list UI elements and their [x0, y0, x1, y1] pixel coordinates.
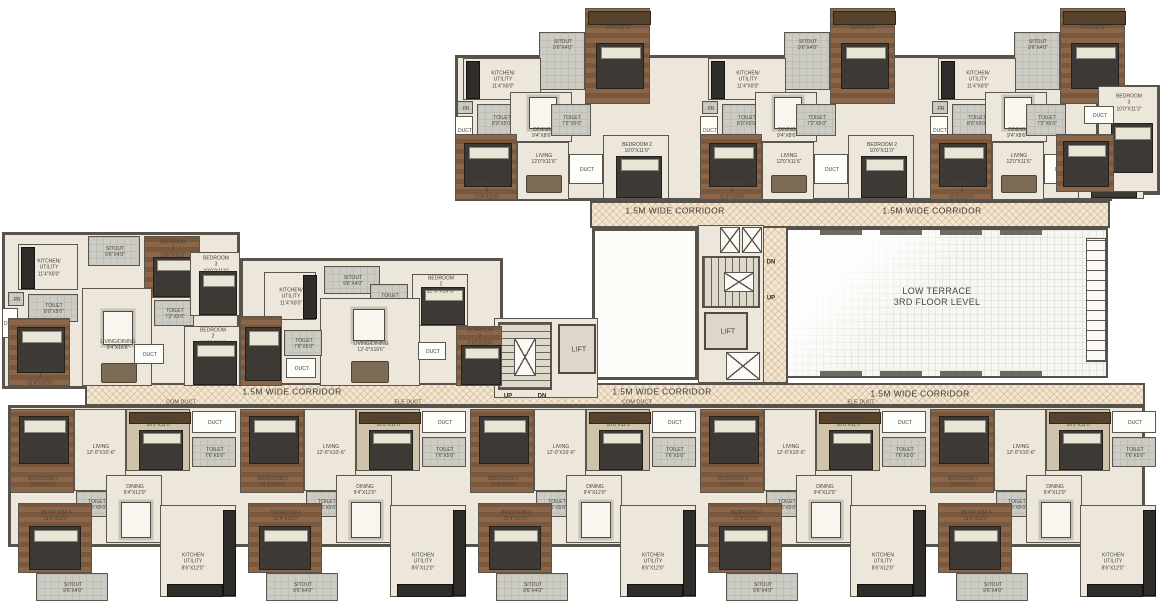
- lift-label: LIFT: [572, 347, 586, 356]
- room-label: LIVING 12'-0"X10'-6": [777, 444, 806, 457]
- room-label: BEDROOM 2 7'10"X10'6": [467, 328, 493, 347]
- bed: [464, 143, 512, 187]
- room-label: LIVING 12'-0"X10'-6": [1007, 444, 1036, 457]
- room-toilet: TOILET 7'6"X5'0": [1112, 437, 1156, 467]
- bed: [369, 430, 413, 470]
- room-bedroom-4: BEDROOM 4 11'4"X12'0": [708, 503, 782, 573]
- room-dining: DINING 9'4"X12'0": [1026, 475, 1082, 543]
- room-label: LIVING 12'0"X11'6": [1006, 153, 1031, 166]
- room-label: BEDROOM 2 11'3"X10'0": [28, 476, 58, 489]
- terrace-edge-mark: [940, 371, 982, 376]
- room-toilet: TOILET 7'6"X5'0": [192, 437, 236, 467]
- room-label: BEDROOM 3 10'0"X11'3": [1115, 94, 1143, 113]
- room-duct: DUCT: [422, 411, 466, 433]
- room-label: KITCHEN UTILITY 8'6"X12'0": [412, 553, 435, 572]
- room-bedroom-3: BEDROOM 3 10'0"X11'3": [585, 8, 650, 104]
- room-room: [1056, 134, 1114, 192]
- room-pr: PR: [702, 101, 718, 114]
- pillow: [846, 47, 887, 60]
- room-label: DUCT: [208, 420, 222, 426]
- room-label: SITOUT 9'6"X4'0": [293, 582, 313, 595]
- room-kitchen-utility: KITCHEN UTILITY 8'6"X12'0": [850, 505, 926, 597]
- pillow: [944, 147, 985, 159]
- room-label: BEDROOM 2 11'3"X10'0": [948, 476, 978, 489]
- bed: [1059, 430, 1103, 470]
- room-kitchen-utility: KITCHEN UTILITY 8'6"X12'0": [620, 505, 696, 597]
- duct-shaft: [726, 352, 760, 380]
- room-label: LIVING 12'0"X11'6": [531, 153, 556, 166]
- duct-shaft: [720, 227, 740, 253]
- room-label: DINING 9'4"X12'0": [814, 484, 837, 497]
- room-label: DUCT: [426, 349, 440, 355]
- bed: [616, 156, 662, 198]
- bed: [461, 345, 501, 385]
- bed: [719, 526, 771, 570]
- corridor: [762, 226, 788, 384]
- room-duct: DUCT: [1084, 106, 1114, 124]
- room-bedroom-2: BEDROOM 2 10'0"X11'0": [184, 326, 240, 386]
- sofa: [526, 175, 562, 193]
- room-living: LIVING 12'0"X11'6": [992, 142, 1044, 200]
- room-label: KITCHEN UTILITY 8'6"X12'0": [182, 553, 205, 572]
- room-label: DUCT: [825, 167, 839, 173]
- terrace-edge-mark: [820, 371, 862, 376]
- pillow: [714, 420, 756, 433]
- room-label: TOILET 7'6"X5'0": [895, 447, 915, 460]
- room-duct: DUCT: [286, 358, 316, 378]
- bed: [199, 271, 237, 315]
- pillow: [34, 530, 78, 542]
- room-label: SITOUT 9'6"X4'0": [753, 582, 773, 595]
- kitchen-counter: [167, 584, 223, 597]
- pillow: [714, 147, 755, 159]
- room-bedroom-4: BEDROOM 4 11'4"X12'0": [18, 503, 92, 573]
- room-label: KITCHEN/ UTILITY 11'4"X8'0": [491, 71, 514, 90]
- kitchen-counter: [683, 510, 696, 596]
- pillow: [249, 331, 280, 345]
- kitchen-counter: [21, 247, 35, 289]
- room-label: LIVING 12'0"X11'6": [776, 153, 801, 166]
- room-kitchen-utility: KITCHEN UTILITY 8'6"X12'0": [1080, 505, 1156, 597]
- bed: [1071, 43, 1119, 89]
- terrace-edge-mark: [1000, 371, 1042, 376]
- pillow: [1076, 47, 1117, 60]
- room-label: KITCHEN/ UTILITY 11'4"X8'0": [966, 71, 989, 90]
- bed: [139, 430, 183, 470]
- room-toilet: TOILET 7'2"X5'0": [551, 104, 591, 136]
- kitchen-counter: [1143, 510, 1156, 596]
- room-label: SITOUT 9'6"X4'0": [523, 582, 543, 595]
- room-label: SITOUT 9'6"X4'0": [1028, 39, 1048, 52]
- room-label: BEDROOM 2 11'3"X10'0": [258, 476, 288, 489]
- room-label: KITCHEN UTILITY 8'6"X12'0": [872, 553, 895, 572]
- bed: [599, 430, 643, 470]
- bed: [596, 43, 644, 89]
- room-dining: DINING 9'4"X12'0": [796, 475, 852, 543]
- room-living-dining: LIVING/DINING 9'4"X16'6": [82, 288, 152, 386]
- pillow: [264, 530, 308, 542]
- wardrobe: [833, 11, 896, 25]
- dining-table: [353, 309, 385, 341]
- dining-table: [811, 502, 841, 538]
- room-label: SITOUT 9'6"X4'0": [105, 246, 125, 259]
- room-label: BEDROOM 2 11'3"X10'0": [488, 476, 518, 489]
- kitchen-counter: [627, 584, 683, 597]
- room-label: TOILET 8'0"X5'0": [737, 115, 757, 128]
- room-label: TOILET 7'2"X5'0": [562, 115, 582, 128]
- room-label: TOILET 8'0"X5'0": [967, 115, 987, 128]
- room-label: BEDROOM 4 11'4"X12'0": [41, 510, 71, 523]
- kitchen-counter: [223, 510, 236, 596]
- pillow: [866, 159, 905, 171]
- kitchen-counter: [466, 61, 480, 99]
- bed: [709, 416, 759, 464]
- room-bedroom-4: BEDROOM 4 11'3"X10'0": [455, 134, 517, 200]
- wardrobe: [589, 412, 651, 424]
- room-label: BEDROOM 4 11'4"X12'0": [271, 510, 301, 523]
- room-label: SITOUT 9'6"X4'0": [553, 39, 573, 52]
- pillow: [603, 433, 640, 444]
- terrace-edge-mark: [940, 230, 982, 235]
- room-label: TOILET 7'2"X5'0": [807, 115, 827, 128]
- room-toilet: TOILET 7'2"X5'0": [1026, 104, 1066, 136]
- bed: [249, 416, 299, 464]
- room-dining: DINING 9'4"X12'0": [566, 475, 622, 543]
- room-toilet: TOILET 7'2"X5'0": [796, 104, 836, 136]
- bed: [17, 327, 65, 373]
- room-dining: DINING 9'4"X12'0": [106, 475, 162, 543]
- room-duct: DUCT: [652, 411, 696, 433]
- room-sitout: SITOUT 9'6"X4'0": [36, 573, 108, 601]
- dining-table: [581, 502, 611, 538]
- room-label: KITCHEN/ UTILITY 11'4"X8'0": [37, 259, 60, 278]
- room-label: BEDROOM 4 11'4"X12'0": [961, 510, 991, 523]
- kitchen-counter: [453, 510, 466, 596]
- bed: [193, 341, 237, 385]
- room-bedroom-3: BEDROOM 3 10'0"X11'0": [586, 409, 650, 471]
- room-bedroom-2: BEDROOM 2 11'3"X10'0": [10, 409, 74, 493]
- room-living-dining: LIVING/DINING 12'-0"X16'6": [320, 298, 420, 386]
- bed: [153, 257, 195, 297]
- room-sitout: SITOUT 9'6"X4'0": [88, 236, 140, 266]
- room-sitout: SITOUT 9'6"X4'0": [496, 573, 568, 601]
- room-duct: DUCT: [882, 411, 926, 433]
- kitchen-counter: [1087, 584, 1143, 597]
- room-bedroom-2: BEDROOM 2 11'3"X10'0": [240, 409, 304, 493]
- room-label: DUCT: [1093, 113, 1107, 119]
- room-bedroom-2: BEDROOM 2 11'3"X10'0": [930, 409, 994, 493]
- pillow: [484, 420, 526, 433]
- bed: [939, 416, 989, 464]
- room-label: SITOUT 9'6"X4'0": [798, 39, 818, 52]
- room-toilet: TOILET 7'6"X5'0": [652, 437, 696, 467]
- bed: [19, 416, 69, 464]
- pillow: [469, 147, 510, 159]
- room-bedroom-4: BEDROOM 4 11'3"X10'0": [930, 134, 992, 200]
- pillow: [197, 345, 234, 357]
- pillow: [465, 348, 499, 359]
- room-duct: DUCT: [1112, 411, 1156, 433]
- wardrobe: [588, 11, 651, 25]
- stair-mid-landing: [514, 338, 536, 376]
- empty-room: [592, 228, 698, 380]
- bed: [709, 143, 757, 187]
- terrace-edge-mark: [880, 230, 922, 235]
- bed: [489, 526, 541, 570]
- room-living: LIVING 12'0"X11'6": [517, 142, 569, 200]
- pillow: [254, 420, 296, 433]
- pillow: [1068, 145, 1107, 158]
- room-kitchen-utility: KITCHEN UTILITY 8'6"X12'0": [160, 505, 236, 597]
- room-label: TOILET 7'2"X5'0": [165, 308, 185, 321]
- room-bedroom-4: BEDROOM 4 11'4"X12'0": [248, 503, 322, 573]
- sofa: [771, 175, 807, 193]
- room-label: DUCT: [898, 420, 912, 426]
- room-pr: PR: [932, 101, 948, 114]
- kitchen-counter: [711, 61, 725, 99]
- room-bedroom-4: BEDROOM 4 11'4"X12'0": [478, 503, 552, 573]
- room-label: PR: [708, 105, 715, 111]
- room-kitchen-utility: KITCHEN/ UTILITY 11'4"X8'0": [18, 244, 78, 290]
- room-label: DUCT: [143, 352, 157, 358]
- room-label: KITCHEN/ UTILITY 11'4"X8'0": [279, 288, 302, 307]
- room-label: TOILET 8'0"X5'0": [492, 115, 512, 128]
- room-label: BEDROOM 2 10'0"X11'0": [867, 142, 897, 155]
- room-label: DINING 9'4"X12'0": [124, 484, 147, 497]
- room-label: DUCT: [668, 420, 682, 426]
- room-label: LIVING 12'-0"X10'-6": [317, 444, 346, 457]
- room-bedroom-3: BEDROOM 3 10'0"X11'0": [816, 409, 880, 471]
- kitchen-counter: [397, 584, 453, 597]
- wardrobe: [129, 412, 191, 424]
- room-label: DUCT: [295, 366, 309, 372]
- bed: [245, 327, 281, 381]
- room-label: SITOUT 9'6"X4'0": [343, 275, 363, 288]
- room-pr: PR: [457, 101, 473, 114]
- room-label: TOILET 7'6"X5'0": [294, 338, 314, 351]
- room-label: BEDROOM 4 11'4"X12'0": [501, 510, 531, 523]
- room-label: PR: [938, 105, 945, 111]
- room-sitout: SITOUT 9'6"X4'0": [1014, 32, 1060, 90]
- bed: [1063, 141, 1109, 187]
- wardrobe: [359, 412, 421, 424]
- room-label: KITCHEN UTILITY 8'6"X12'0": [642, 553, 665, 572]
- sofa: [351, 361, 389, 383]
- room-sitout: SITOUT 9'6"X4'0": [956, 573, 1028, 601]
- room-label: DINING 9'4"X12'0": [354, 484, 377, 497]
- room-label: LIVING 12'-0"X10'-6": [547, 444, 576, 457]
- sofa: [1001, 175, 1037, 193]
- terrace-edge-mark: [1000, 230, 1042, 235]
- corridor: [85, 383, 1145, 406]
- room-label: DUCT: [438, 420, 452, 426]
- pillow: [143, 433, 180, 444]
- room-label: KITCHEN/ UTILITY 11'4"X8'0": [736, 71, 759, 90]
- pillow: [833, 433, 870, 444]
- room-dining: DINING 9'4"X12'0": [336, 475, 392, 543]
- pillow: [944, 420, 986, 433]
- room-bedroom-2: BEDROOM 2 10'0"X11'0": [848, 135, 914, 199]
- room-bedroom-2: BEDROOM 2 10'0"X11'0": [603, 135, 669, 199]
- room-bedroom-3: BEDROOM 3 10'0"X11'3": [830, 8, 895, 104]
- room-bedroom-2: BEDROOM 2 7'10"X10'6": [456, 326, 502, 386]
- lift-label: LIFT: [721, 329, 735, 338]
- lift-shaft: LIFT: [704, 312, 748, 350]
- pillow: [425, 290, 462, 301]
- room-label: TOILET 8'0"X5'0": [44, 303, 64, 316]
- bed: [841, 43, 889, 89]
- pillow: [157, 260, 193, 271]
- wardrobe: [819, 412, 881, 424]
- room-label: TOILET 7'6"X5'0": [435, 447, 455, 460]
- room-room: [240, 316, 282, 386]
- room-label: DINING 9'4"X12'0": [1044, 484, 1067, 497]
- lift-shaft: LIFT: [558, 324, 596, 374]
- room-label: LIVING/DINING 12'-0"X16'6": [353, 341, 388, 354]
- bed: [949, 526, 1001, 570]
- terrace-edge-mark: [880, 371, 922, 376]
- pillow: [601, 47, 642, 60]
- louver-strip: [1086, 238, 1106, 362]
- wardrobe: [1049, 412, 1111, 424]
- bed: [29, 526, 81, 570]
- pillow: [1115, 127, 1151, 141]
- room-living: LIVING 12'0"X11'6": [762, 142, 814, 200]
- room-kitchen-utility: KITCHEN/ UTILITY 11'4"X8'0": [264, 272, 316, 320]
- room-bedroom-3: BEDROOM 3 10'0"X11'0": [1046, 409, 1110, 471]
- room-duct: DUCT: [569, 154, 603, 184]
- dining-table: [1041, 502, 1071, 538]
- room-bedroom-3: BEDROOM 3 10'0"X11'0": [356, 409, 420, 471]
- room-label: DINING 9'4"X12'0": [584, 484, 607, 497]
- room-bedroom-4: BEDROOM 4 11'3"X10'0": [700, 134, 762, 200]
- dining-table: [103, 311, 133, 345]
- dining-table: [351, 502, 381, 538]
- room-label: KITCHEN UTILITY 8'6"X12'0": [1102, 553, 1125, 572]
- wardrobe: [1063, 11, 1126, 25]
- room-label: DUCT: [1128, 420, 1142, 426]
- room-label: PR: [14, 297, 21, 303]
- room-toilet: TOILET 7'2"X5'0": [154, 300, 194, 326]
- pillow: [494, 530, 538, 542]
- corridor: [590, 201, 1110, 228]
- pillow: [954, 530, 998, 542]
- room-label: PR: [463, 105, 470, 111]
- room-label: LIVING 12'-0"X10'-6": [87, 444, 116, 457]
- room-sitout: SITOUT 9'6"X4'0": [266, 573, 338, 601]
- pillow: [1063, 433, 1100, 444]
- kitchen-counter: [857, 584, 913, 597]
- room-bedroom-2: BEDROOM 2 11'3"X10'0": [700, 409, 764, 493]
- room-label: BEDROOM 2 10'0"X11'0": [622, 142, 652, 155]
- room-label: TOILET 7'6"X5'0": [205, 447, 225, 460]
- room-toilet: TOILET 7'6"X5'0": [284, 330, 322, 356]
- room-duct: DUCT: [134, 344, 164, 364]
- room-label: TOILET 7'2"X5'0": [1037, 115, 1057, 128]
- room-bedroom-2: BEDROOM 2 11'3"X10'0": [470, 409, 534, 493]
- pillow: [724, 530, 768, 542]
- room-toilet: TOILET 7'6"X5'0": [422, 437, 466, 467]
- room-label: BEDROOM 4 11'4"X12'0": [731, 510, 761, 523]
- pillow: [373, 433, 410, 444]
- room-bedroom-3: BEDROOM 3 10'0"X11'0": [126, 409, 190, 471]
- pillow: [24, 420, 66, 433]
- room-label: SITOUT 9'6"X4'0": [63, 582, 83, 595]
- room-duct: DUCT: [192, 411, 236, 433]
- room-bedroom-4: BEDROOM 4 11'4"X12'0": [938, 503, 1012, 573]
- room-sitout: SITOUT 9'6"X4'0": [726, 573, 798, 601]
- room-toilet: TOILET 7'6"X5'0": [882, 437, 926, 467]
- bed: [829, 430, 873, 470]
- room-bedroom-3: BEDROOM 3 10'0"X11'0": [190, 252, 240, 316]
- room-sitout: SITOUT 9'6"X4'0": [784, 32, 830, 90]
- stair-mid-landing: [724, 272, 754, 292]
- bed: [861, 156, 907, 198]
- room-duct: DUCT: [418, 342, 446, 360]
- room-label: TOILET 7'6"X5'0": [665, 447, 685, 460]
- room-label: DUCT: [580, 167, 594, 173]
- floor-plan: 1.5M WIDE CORRIDOR1.5M WIDE CORRIDOR1.5M…: [0, 0, 1160, 605]
- bed: [1111, 123, 1153, 173]
- pillow: [621, 159, 660, 171]
- room-bedroom-2: BEDROOM 2 12'-0"X10'-0": [412, 274, 468, 326]
- room-kitchen-utility: KITCHEN UTILITY 8'6"X12'0": [390, 505, 466, 597]
- pillow: [22, 331, 63, 344]
- pillow: [203, 275, 235, 287]
- duct-shaft: [742, 227, 762, 253]
- terrace-edge-mark: [820, 230, 862, 235]
- room-label: BEDROOM 2 11'3"X10'0": [718, 476, 748, 489]
- bed: [939, 143, 987, 187]
- dining-table: [121, 502, 151, 538]
- kitchen-counter: [303, 275, 317, 319]
- kitchen-counter: [941, 61, 955, 99]
- room-sitout: SITOUT 9'6"X4'0": [539, 32, 585, 90]
- kitchen-counter: [913, 510, 926, 596]
- bed: [421, 287, 465, 325]
- room-label: TOILET 7'6"X5'0": [1125, 447, 1145, 460]
- terrace-area: [786, 228, 1108, 378]
- bed: [479, 416, 529, 464]
- room-duct: DUCT: [814, 154, 848, 184]
- room-bedroom-4: BEDROOM 4 11'4"X10'0": [8, 318, 70, 386]
- bed: [259, 526, 311, 570]
- room-pr: PR: [8, 292, 24, 306]
- sofa: [101, 363, 137, 383]
- room-label: BEDROOM 3 10'0"X11'3": [160, 240, 186, 259]
- room-label: SITOUT 9'6"X4'0": [983, 582, 1003, 595]
